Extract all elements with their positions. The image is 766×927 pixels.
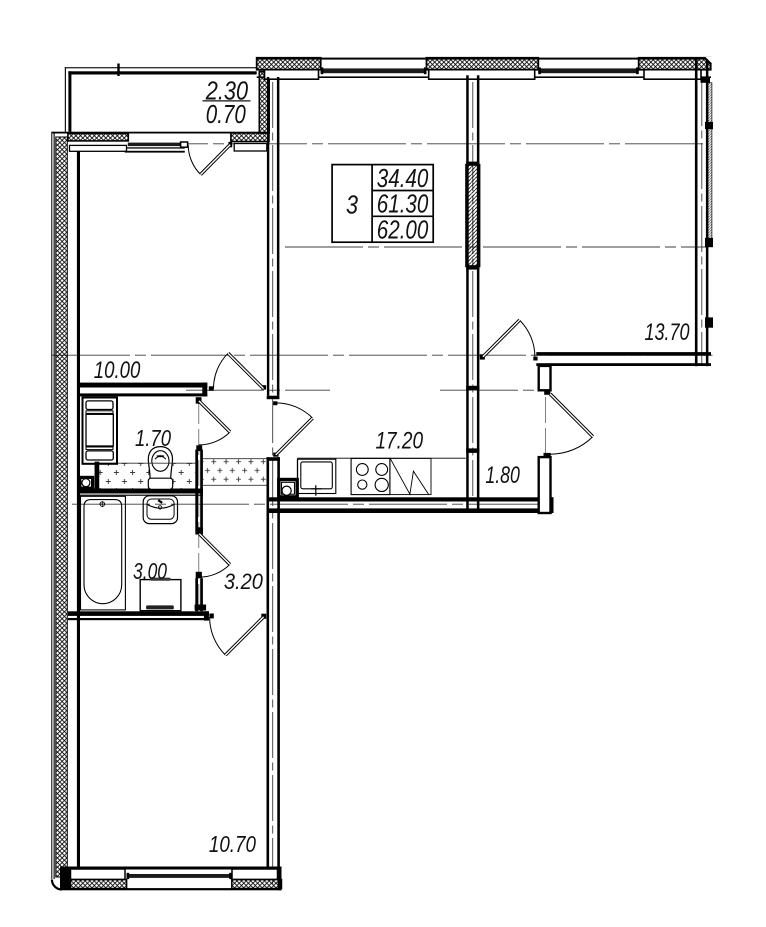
svg-text:3.00: 3.00 [133,558,167,584]
svg-text:3: 3 [346,190,358,220]
svg-text:62.00: 62.00 [377,216,429,244]
svg-text:17.20: 17.20 [376,428,424,455]
svg-text:34.40: 34.40 [377,165,429,193]
svg-text:13.70: 13.70 [645,319,690,346]
svg-text:10.70: 10.70 [209,831,256,857]
svg-text:3.20: 3.20 [224,569,263,594]
svg-text:61.30: 61.30 [377,191,429,219]
svg-text:1.80: 1.80 [485,462,520,489]
svg-text:0.70: 0.70 [206,99,246,129]
svg-text:1.70: 1.70 [135,425,171,451]
svg-text:10.00: 10.00 [94,357,141,384]
